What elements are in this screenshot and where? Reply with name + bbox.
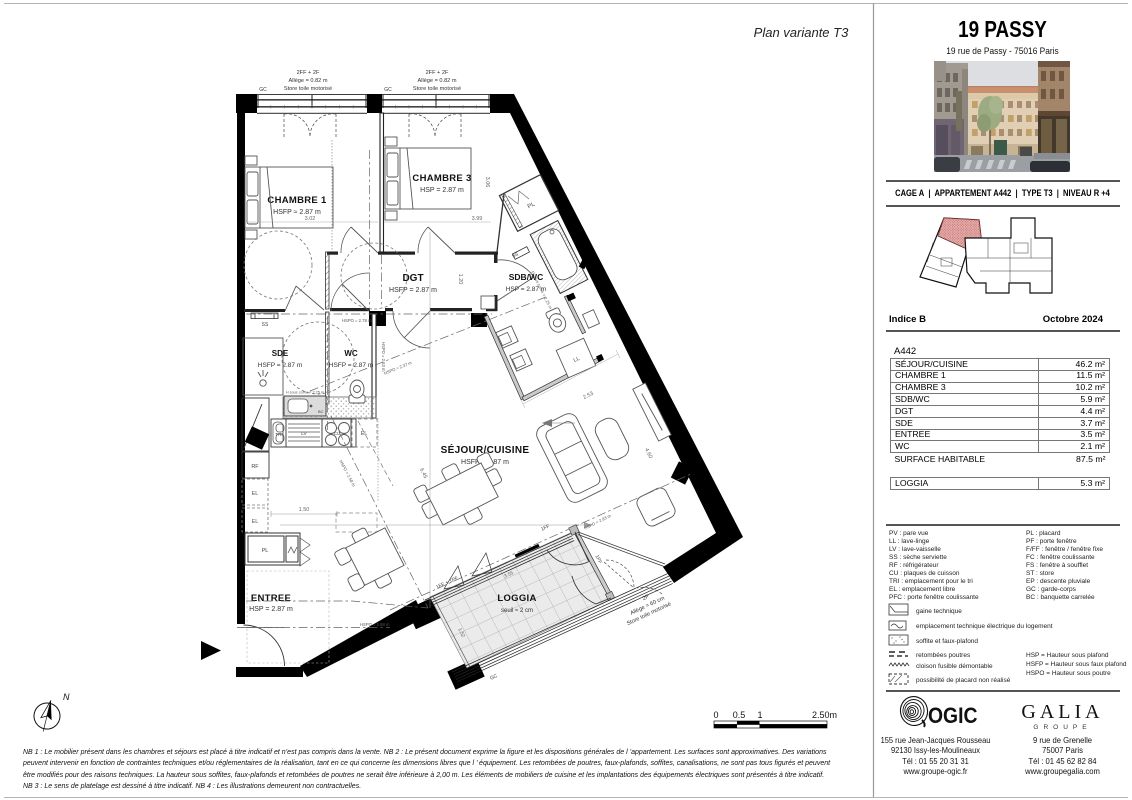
svg-text:2.53: 2.53 <box>582 391 594 401</box>
svg-text:0: 0 <box>713 710 718 720</box>
svg-text:GC: GC <box>489 673 499 682</box>
svg-text:HSPO = 2.78 m: HSPO = 2.78 m <box>342 318 372 323</box>
svg-text:DGT: DGT <box>402 273 423 284</box>
svg-text:gaine technique: gaine technique <box>916 608 962 615</box>
svg-text:HSPO = 2.37 m: HSPO = 2.37 m <box>383 360 413 376</box>
svg-text:EL: EL <box>252 519 259 525</box>
svg-text:3.06: 3.06 <box>484 177 490 188</box>
svg-text:H sous coffre = 2.25 m: H sous coffre = 2.25 m <box>286 391 324 395</box>
svg-text:3.02: 3.02 <box>305 216 316 222</box>
svg-text:SS: SS <box>262 322 269 328</box>
svg-text:6.45: 6.45 <box>418 467 428 479</box>
svg-text:soffite et faux-plafond: soffite et faux-plafond <box>916 638 978 645</box>
svg-text:SDE: SDE <box>272 349 289 358</box>
svg-text:2FF + 2F: 2FF + 2F <box>426 70 449 76</box>
svg-text:TRI: TRI <box>275 432 282 437</box>
svg-text:2.50m: 2.50m <box>812 710 837 720</box>
svg-text:Store toile motorisé: Store toile motorisé <box>284 86 332 92</box>
svg-text:HSFP = Hauteur sous faux plafo: HSFP = Hauteur sous faux plafond <box>1026 661 1127 668</box>
svg-text:retombées poutres: retombées poutres <box>916 652 971 659</box>
svg-text:GC: GC <box>384 87 392 93</box>
svg-text:HSP = Hauteur sous plafond: HSP = Hauteur sous plafond <box>1026 652 1109 659</box>
svg-text:LV: LV <box>301 431 307 437</box>
svg-text:Allège = 0.82 m: Allège = 0.82 m <box>288 78 327 84</box>
svg-text:CHAMBRE 1: CHAMBRE 1 <box>267 195 327 206</box>
svg-text:CHAMBRE 3: CHAMBRE 3 <box>412 173 471 184</box>
svg-text:HSFP = 2.87 m: HSFP = 2.87 m <box>329 362 374 369</box>
svg-text:4.60: 4.60 <box>643 447 653 459</box>
svg-text:2P: 2P <box>642 594 651 602</box>
svg-text:HSFP ≈ 2.87 m: HSFP ≈ 2.87 m <box>273 209 321 216</box>
svg-text:PL: PL <box>262 548 269 554</box>
svg-text:HSFP = 2.87 m: HSFP = 2.87 m <box>258 362 303 369</box>
svg-text:Allège = 0.82 m: Allège = 0.82 m <box>417 78 456 84</box>
svg-text:1.50: 1.50 <box>299 507 310 513</box>
svg-text:1: 1 <box>757 710 762 720</box>
svg-text:ENTREE: ENTREE <box>251 593 291 604</box>
svg-text:HSPO = Hauteur sous poutre: HSPO = Hauteur sous poutre <box>1026 670 1111 677</box>
svg-text:seuil ≈ 2 cm: seuil ≈ 2 cm <box>501 608 533 614</box>
svg-text:BC: BC <box>318 409 324 414</box>
svg-text:RF: RF <box>251 464 259 470</box>
svg-text:HSPO = 2.88 m: HSPO = 2.88 m <box>360 622 390 627</box>
svg-text:N: N <box>63 692 70 702</box>
svg-text:HSPO = 2.53 m: HSPO = 2.53 m <box>381 342 386 372</box>
svg-text:Plan variante T3: Plan variante T3 <box>754 25 849 40</box>
svg-text:GC: GC <box>259 87 267 93</box>
svg-text:WC: WC <box>344 349 358 358</box>
svg-text:emplacement technique électriq: emplacement technique électrique du loge… <box>916 623 1053 630</box>
svg-text:cloison fusible démontable: cloison fusible démontable <box>916 663 993 670</box>
svg-text:0.5: 0.5 <box>733 710 746 720</box>
svg-text:HSP = 2.87 m: HSP = 2.87 m <box>249 606 293 613</box>
svg-text:HSPO = 2.93 m: HSPO = 2.93 m <box>583 513 612 531</box>
svg-text:HSPO = 2.58 m: HSPO = 2.58 m <box>338 459 356 488</box>
svg-text:EL: EL <box>252 491 259 497</box>
svg-text:1.20: 1.20 <box>457 274 463 285</box>
svg-text:possibilité de placard non réa: possibilité de placard non réalisé <box>916 677 1011 684</box>
svg-text:3.99: 3.99 <box>472 216 483 222</box>
svg-text:OGIC: OGIC <box>928 704 978 728</box>
svg-text:LOGGIA: LOGGIA <box>497 593 536 604</box>
svg-text:Store toile motorisé: Store toile motorisé <box>413 86 461 92</box>
svg-text:2FF + 2F: 2FF + 2F <box>297 70 320 76</box>
svg-text:HSP = 2.87 m: HSP = 2.87 m <box>420 187 464 194</box>
